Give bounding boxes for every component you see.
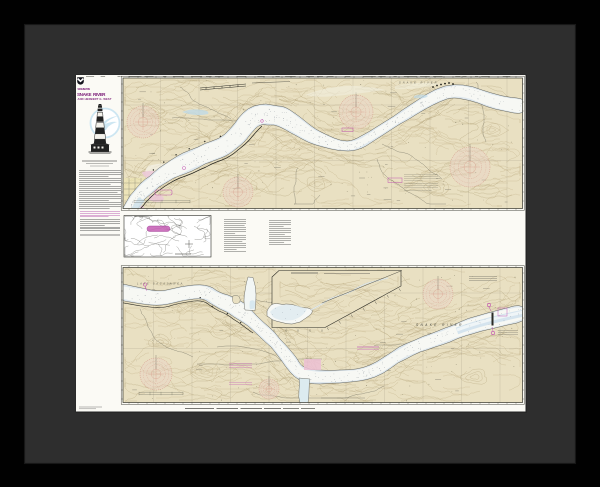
svg-text:AND HERBERT G. WEST: AND HERBERT G. WEST <box>78 97 112 101</box>
svg-text:SNAKE RIVER: SNAKE RIVER <box>77 92 106 97</box>
svg-text:SNAKE RIVER: SNAKE RIVER <box>399 81 438 85</box>
svg-text:SNAKE RIVER: SNAKE RIVER <box>416 323 464 327</box>
svg-text:WASHINGTON: WASHINGTON <box>78 88 91 91</box>
svg-text:LAKE SACAJAWEA: LAKE SACAJAWEA <box>137 282 184 286</box>
